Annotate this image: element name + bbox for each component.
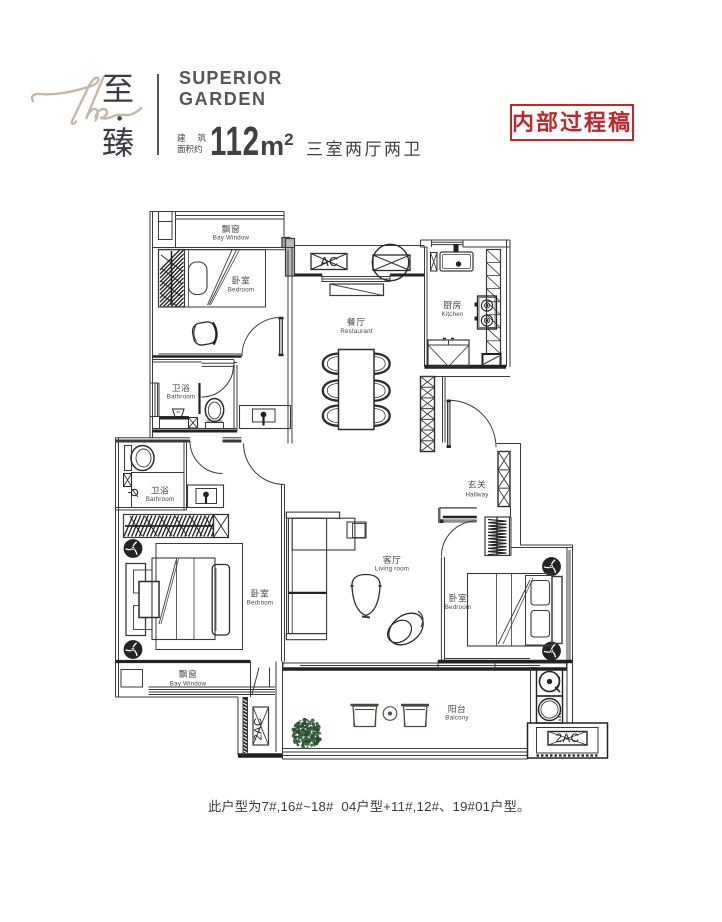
svg-text:Bedroom: Bedroom — [247, 600, 274, 607]
svg-text:2AC: 2AC — [253, 718, 265, 741]
svg-text:Bedroom: Bedroom — [228, 287, 255, 294]
svg-text:Restaurant: Restaurant — [340, 328, 372, 335]
svg-text:Kitchen: Kitchen — [441, 311, 463, 318]
svg-text:卧室: 卧室 — [232, 275, 251, 286]
svg-text:卧室: 卧室 — [251, 588, 270, 599]
svg-text:玄关: 玄关 — [468, 479, 487, 490]
svg-text:Bathroom: Bathroom — [167, 394, 195, 401]
svg-text:飘窗: 飘窗 — [222, 223, 241, 234]
svg-text:飘窗: 飘窗 — [179, 668, 198, 679]
svg-text:Bay Window: Bay Window — [213, 235, 250, 242]
svg-text:Balcony: Balcony — [445, 715, 469, 722]
svg-text:AC: AC — [320, 255, 338, 269]
svg-text:卫浴: 卫浴 — [172, 383, 191, 393]
svg-text:2AC: 2AC — [556, 733, 580, 745]
svg-text:Living room: Living room — [375, 566, 409, 573]
svg-text:Bay Window: Bay Window — [170, 681, 207, 688]
svg-text:卫浴: 卫浴 — [151, 486, 170, 496]
svg-text:餐厅: 餐厅 — [347, 316, 367, 327]
svg-text:Bedroom: Bedroom — [445, 604, 472, 611]
svg-text:卧室: 卧室 — [449, 592, 468, 603]
svg-text:阳台: 阳台 — [448, 703, 467, 714]
svg-text:客厅: 客厅 — [383, 554, 402, 565]
svg-text:Hallway: Hallway — [465, 492, 489, 499]
svg-text:厨房: 厨房 — [443, 299, 462, 310]
svg-text:Bathroom: Bathroom — [146, 496, 174, 503]
